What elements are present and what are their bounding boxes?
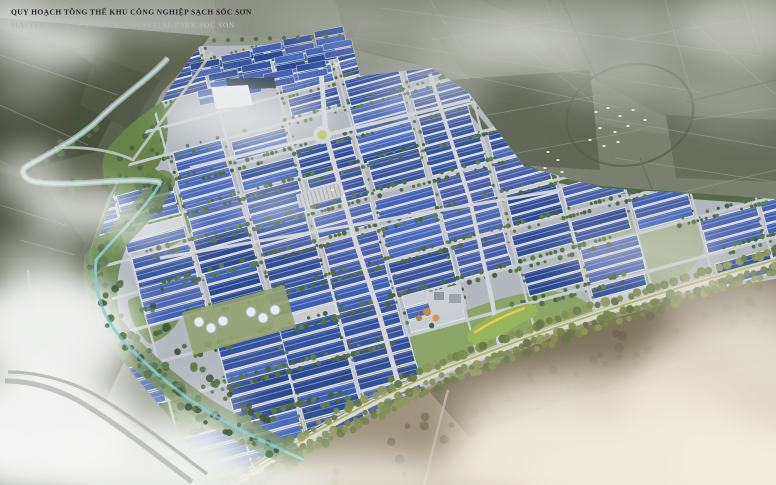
- svg-text:QUY HOẠCH TỒNG THỂ KHU CÔNG NG: QUY HOẠCH TỒNG THỂ KHU CÔNG NGHIỆP SẠCH …: [11, 7, 252, 17]
- svg-text:MASTER PLAN OF CLEARN INDUSTRI: MASTER PLAN OF CLEARN INDUSTRIAL PARK SO…: [11, 21, 235, 30]
